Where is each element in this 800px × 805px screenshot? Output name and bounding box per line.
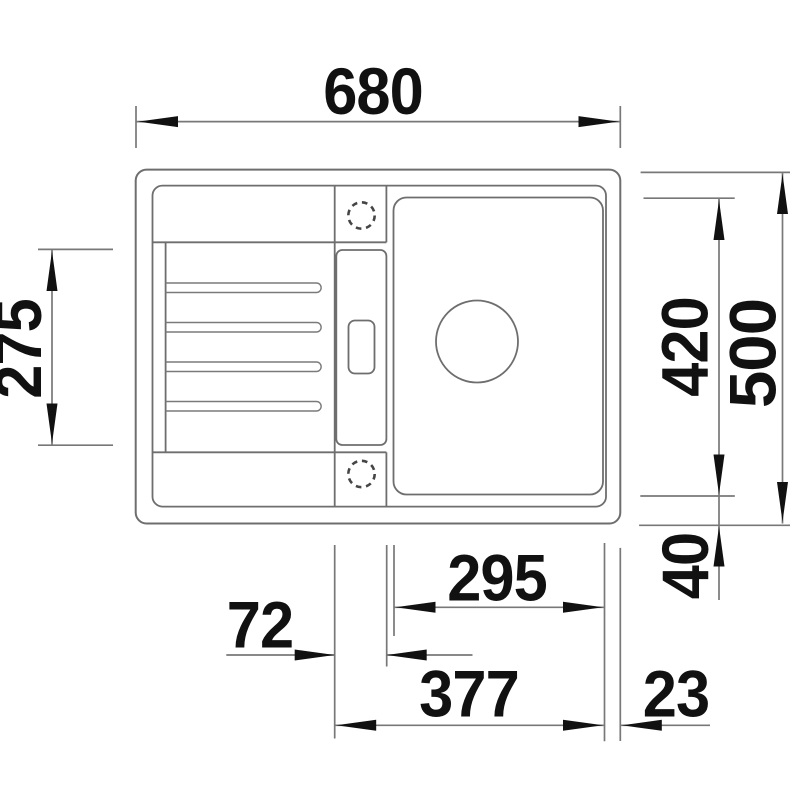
svg-text:680: 680 [323, 54, 423, 129]
svg-text:40: 40 [648, 533, 723, 599]
svg-text:420: 420 [647, 297, 722, 397]
svg-text:23: 23 [643, 656, 709, 731]
svg-text:295: 295 [447, 540, 547, 615]
svg-text:500: 500 [717, 299, 790, 408]
svg-text:377: 377 [419, 656, 519, 731]
svg-text:72: 72 [227, 587, 293, 662]
svg-text:275: 275 [0, 299, 55, 399]
